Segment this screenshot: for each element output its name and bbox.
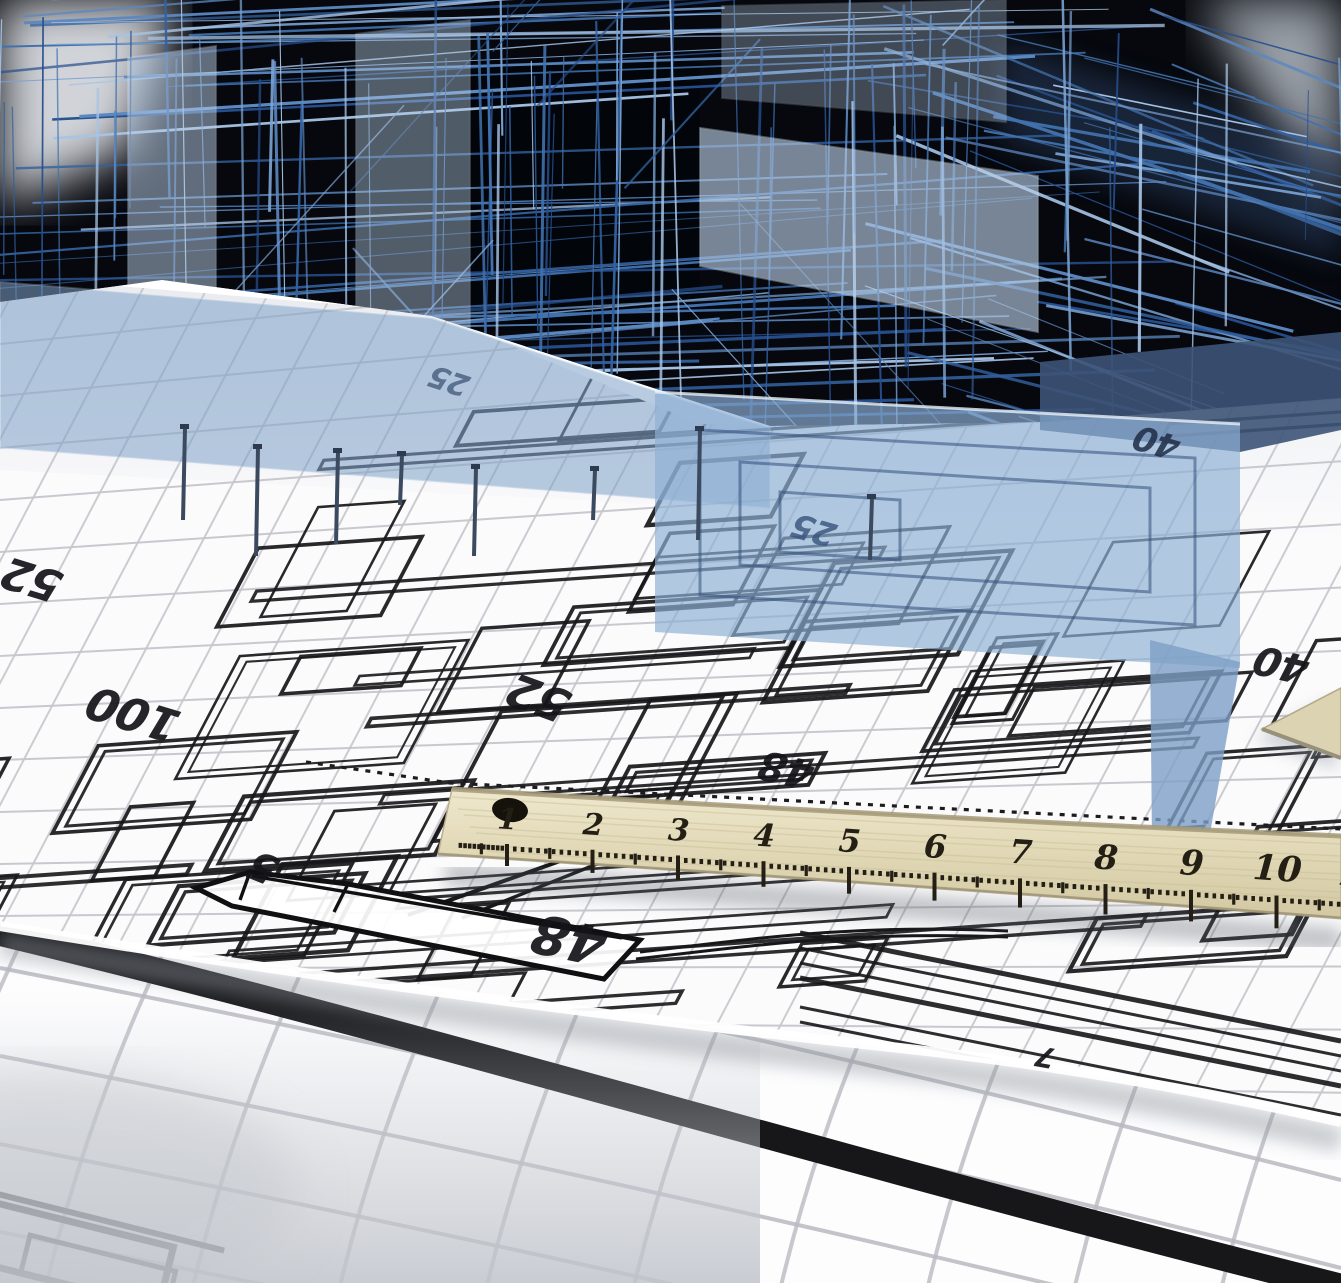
column-cap — [590, 466, 599, 471]
ruler-minor-tick — [972, 877, 976, 882]
wireframe-line — [4, 102, 5, 275]
ruler-minor-tick — [1127, 888, 1131, 893]
ruler-minor-tick — [715, 860, 719, 865]
ruler-number: 1 — [496, 801, 519, 836]
ruler-minor-tick — [473, 844, 477, 849]
ruler-minor-tick — [463, 843, 467, 848]
ruler-minor-tick — [496, 845, 500, 850]
ruler-minor-tick — [902, 873, 906, 878]
column-cap — [333, 448, 342, 453]
ruler-minor-tick — [552, 849, 556, 854]
ruler-minor-tick — [521, 847, 525, 852]
ruler-minor-tick — [746, 862, 750, 867]
ruler-minor-tick — [839, 868, 843, 873]
ruler-minor-tick — [1236, 895, 1240, 900]
wireframe-line — [497, 124, 499, 345]
ruler-minor-tick — [723, 861, 727, 866]
ruler-minor-tick — [622, 854, 626, 859]
ruler-minor-tick — [1205, 893, 1209, 898]
ruler-minor-tick — [684, 858, 688, 863]
ruler-minor-tick — [575, 851, 579, 856]
ruler-minor-tick — [731, 861, 735, 866]
ruler-minor-tick — [948, 876, 952, 881]
ruler-minor-tick — [661, 856, 665, 861]
ruler-minor-tick — [1298, 899, 1302, 904]
ruler-minor-tick — [1135, 888, 1139, 893]
wireframe-line — [114, 111, 115, 261]
ruler-minor-tick — [1197, 892, 1201, 897]
column — [336, 452, 338, 544]
ruler-minor-tick — [1034, 881, 1038, 886]
ruler-number: 5 — [837, 822, 862, 860]
column — [256, 448, 258, 556]
column — [400, 455, 402, 505]
ruler-minor-tick — [1174, 891, 1178, 896]
ruler-minor-tick — [832, 868, 836, 873]
ruler-minor-tick — [1119, 887, 1123, 892]
ruler-number: 6 — [923, 827, 948, 866]
scene-canvas: 521005248405487402525 1234567891011 — [0, 0, 1341, 1283]
ruler-minor-tick — [1042, 882, 1046, 887]
ruler-minor-tick — [637, 855, 641, 860]
ruler-minor-tick — [925, 874, 929, 879]
wireframe-line — [617, 13, 618, 181]
ruler-minor-tick — [1150, 889, 1154, 894]
column-cap — [867, 494, 876, 499]
ruler-minor-tick — [630, 854, 634, 859]
ruler-minor-tick — [491, 845, 495, 850]
ruler-minor-tick — [487, 845, 491, 850]
ruler-number: 4 — [752, 817, 776, 854]
ruler-minor-tick — [501, 846, 505, 851]
ruler-number: 3 — [667, 812, 691, 849]
ruler-minor-tick — [513, 847, 517, 852]
ruler-minor-tick — [653, 856, 657, 861]
ruler-minor-tick — [583, 851, 587, 856]
column — [698, 430, 700, 540]
ruler-minor-tick — [956, 876, 960, 881]
ruler-minor-tick — [917, 874, 921, 879]
ruler-number: 2 — [581, 807, 605, 843]
blueprint-scene: 521005248405487402525 1234567891011 — [0, 0, 1341, 1283]
ruler-minor-tick — [1337, 902, 1341, 907]
ruler-minor-tick — [1026, 881, 1030, 886]
ruler-minor-tick — [1088, 885, 1092, 890]
column-cap — [253, 444, 262, 449]
ruler-minor-tick — [1329, 901, 1333, 906]
column — [870, 498, 872, 560]
ruler-minor-tick — [1282, 898, 1286, 903]
ruler-minor-tick — [1228, 894, 1232, 899]
ruler-number: 10 — [1251, 847, 1303, 891]
column-cap — [471, 464, 480, 469]
column — [183, 428, 185, 520]
ruler-minor-tick — [1096, 886, 1100, 891]
ruler-minor-tick — [801, 866, 805, 871]
ruler-minor-tick — [707, 860, 711, 865]
wireframe-line — [1139, 124, 1141, 352]
ruler-minor-tick — [692, 858, 696, 863]
column-cap — [180, 424, 189, 429]
ruler-minor-tick — [769, 864, 773, 869]
column-cap — [397, 451, 406, 456]
ruler-minor-tick — [700, 859, 704, 864]
ruler-minor-tick — [793, 865, 797, 870]
ruler-minor-tick — [1314, 900, 1318, 905]
ruler-minor-tick — [1259, 897, 1263, 902]
ruler-minor-tick — [1321, 901, 1325, 906]
ruler-minor-tick — [855, 869, 859, 874]
ruler-minor-tick — [995, 879, 999, 884]
ruler-minor-tick — [1267, 897, 1271, 902]
ruler-minor-tick — [1111, 887, 1115, 892]
ruler-minor-tick — [1290, 899, 1294, 904]
ruler-minor-tick — [606, 853, 610, 858]
ruler-minor-tick — [1003, 879, 1007, 884]
ruler-minor-tick — [1049, 882, 1053, 887]
ruler-minor-tick — [1251, 896, 1255, 901]
ruler-number: 8 — [1092, 836, 1119, 878]
ruler-minor-tick — [894, 872, 898, 877]
ruler-minor-tick — [1143, 889, 1147, 894]
ruler-minor-tick — [598, 852, 602, 857]
ruler-minor-tick — [1181, 891, 1185, 896]
ruler-minor-tick — [1306, 900, 1310, 905]
ruler-minor-tick — [1166, 890, 1170, 895]
ruler-minor-tick — [940, 875, 944, 880]
ruler-minor-tick — [785, 865, 789, 870]
ruler-minor-tick — [536, 848, 540, 853]
ruler-minor-tick — [909, 873, 913, 878]
ruler-number: 7 — [1008, 832, 1034, 873]
ruler-minor-tick — [808, 866, 812, 871]
ruler-minor-tick — [1213, 893, 1217, 898]
ruler-minor-tick — [459, 843, 463, 848]
ruler-minor-tick — [468, 844, 472, 849]
ruler-minor-tick — [754, 863, 758, 868]
ruler-minor-tick — [614, 853, 618, 858]
wireframe-line — [346, 68, 347, 305]
ruler-minor-tick — [544, 849, 548, 854]
ruler-minor-tick — [886, 872, 890, 877]
ruler-minor-tick — [878, 871, 882, 876]
ruler-minor-tick — [777, 864, 781, 869]
ruler-number: 9 — [1178, 843, 1205, 885]
ruler-minor-tick — [529, 848, 533, 853]
ruler-minor-tick — [1158, 890, 1162, 895]
ruler-minor-tick — [1073, 884, 1077, 889]
column-cap — [695, 426, 704, 431]
ruler-minor-tick — [816, 867, 820, 872]
column — [593, 470, 595, 520]
ruler-minor-tick — [560, 850, 564, 855]
column — [474, 468, 476, 556]
ruler-minor-tick — [567, 850, 571, 855]
ruler-minor-tick — [987, 878, 991, 883]
ruler-minor-tick — [1220, 894, 1224, 899]
wireframe-line — [1226, 64, 1227, 327]
ruler-minor-tick — [824, 867, 828, 872]
ruler-minor-tick — [964, 877, 968, 882]
ruler-minor-tick — [863, 870, 867, 875]
ruler-minor-tick — [645, 855, 649, 860]
ruler-minor-tick — [871, 870, 875, 875]
ruler-minor-tick — [668, 857, 672, 862]
ruler-minor-tick — [1057, 883, 1061, 888]
ruler-minor-tick — [1010, 880, 1014, 885]
ruler-minor-tick — [1080, 885, 1084, 890]
ruler-minor-tick — [1065, 883, 1069, 888]
ruler-minor-tick — [738, 862, 742, 867]
ruler-minor-tick — [979, 878, 983, 883]
ruler-minor-tick — [1244, 895, 1248, 900]
